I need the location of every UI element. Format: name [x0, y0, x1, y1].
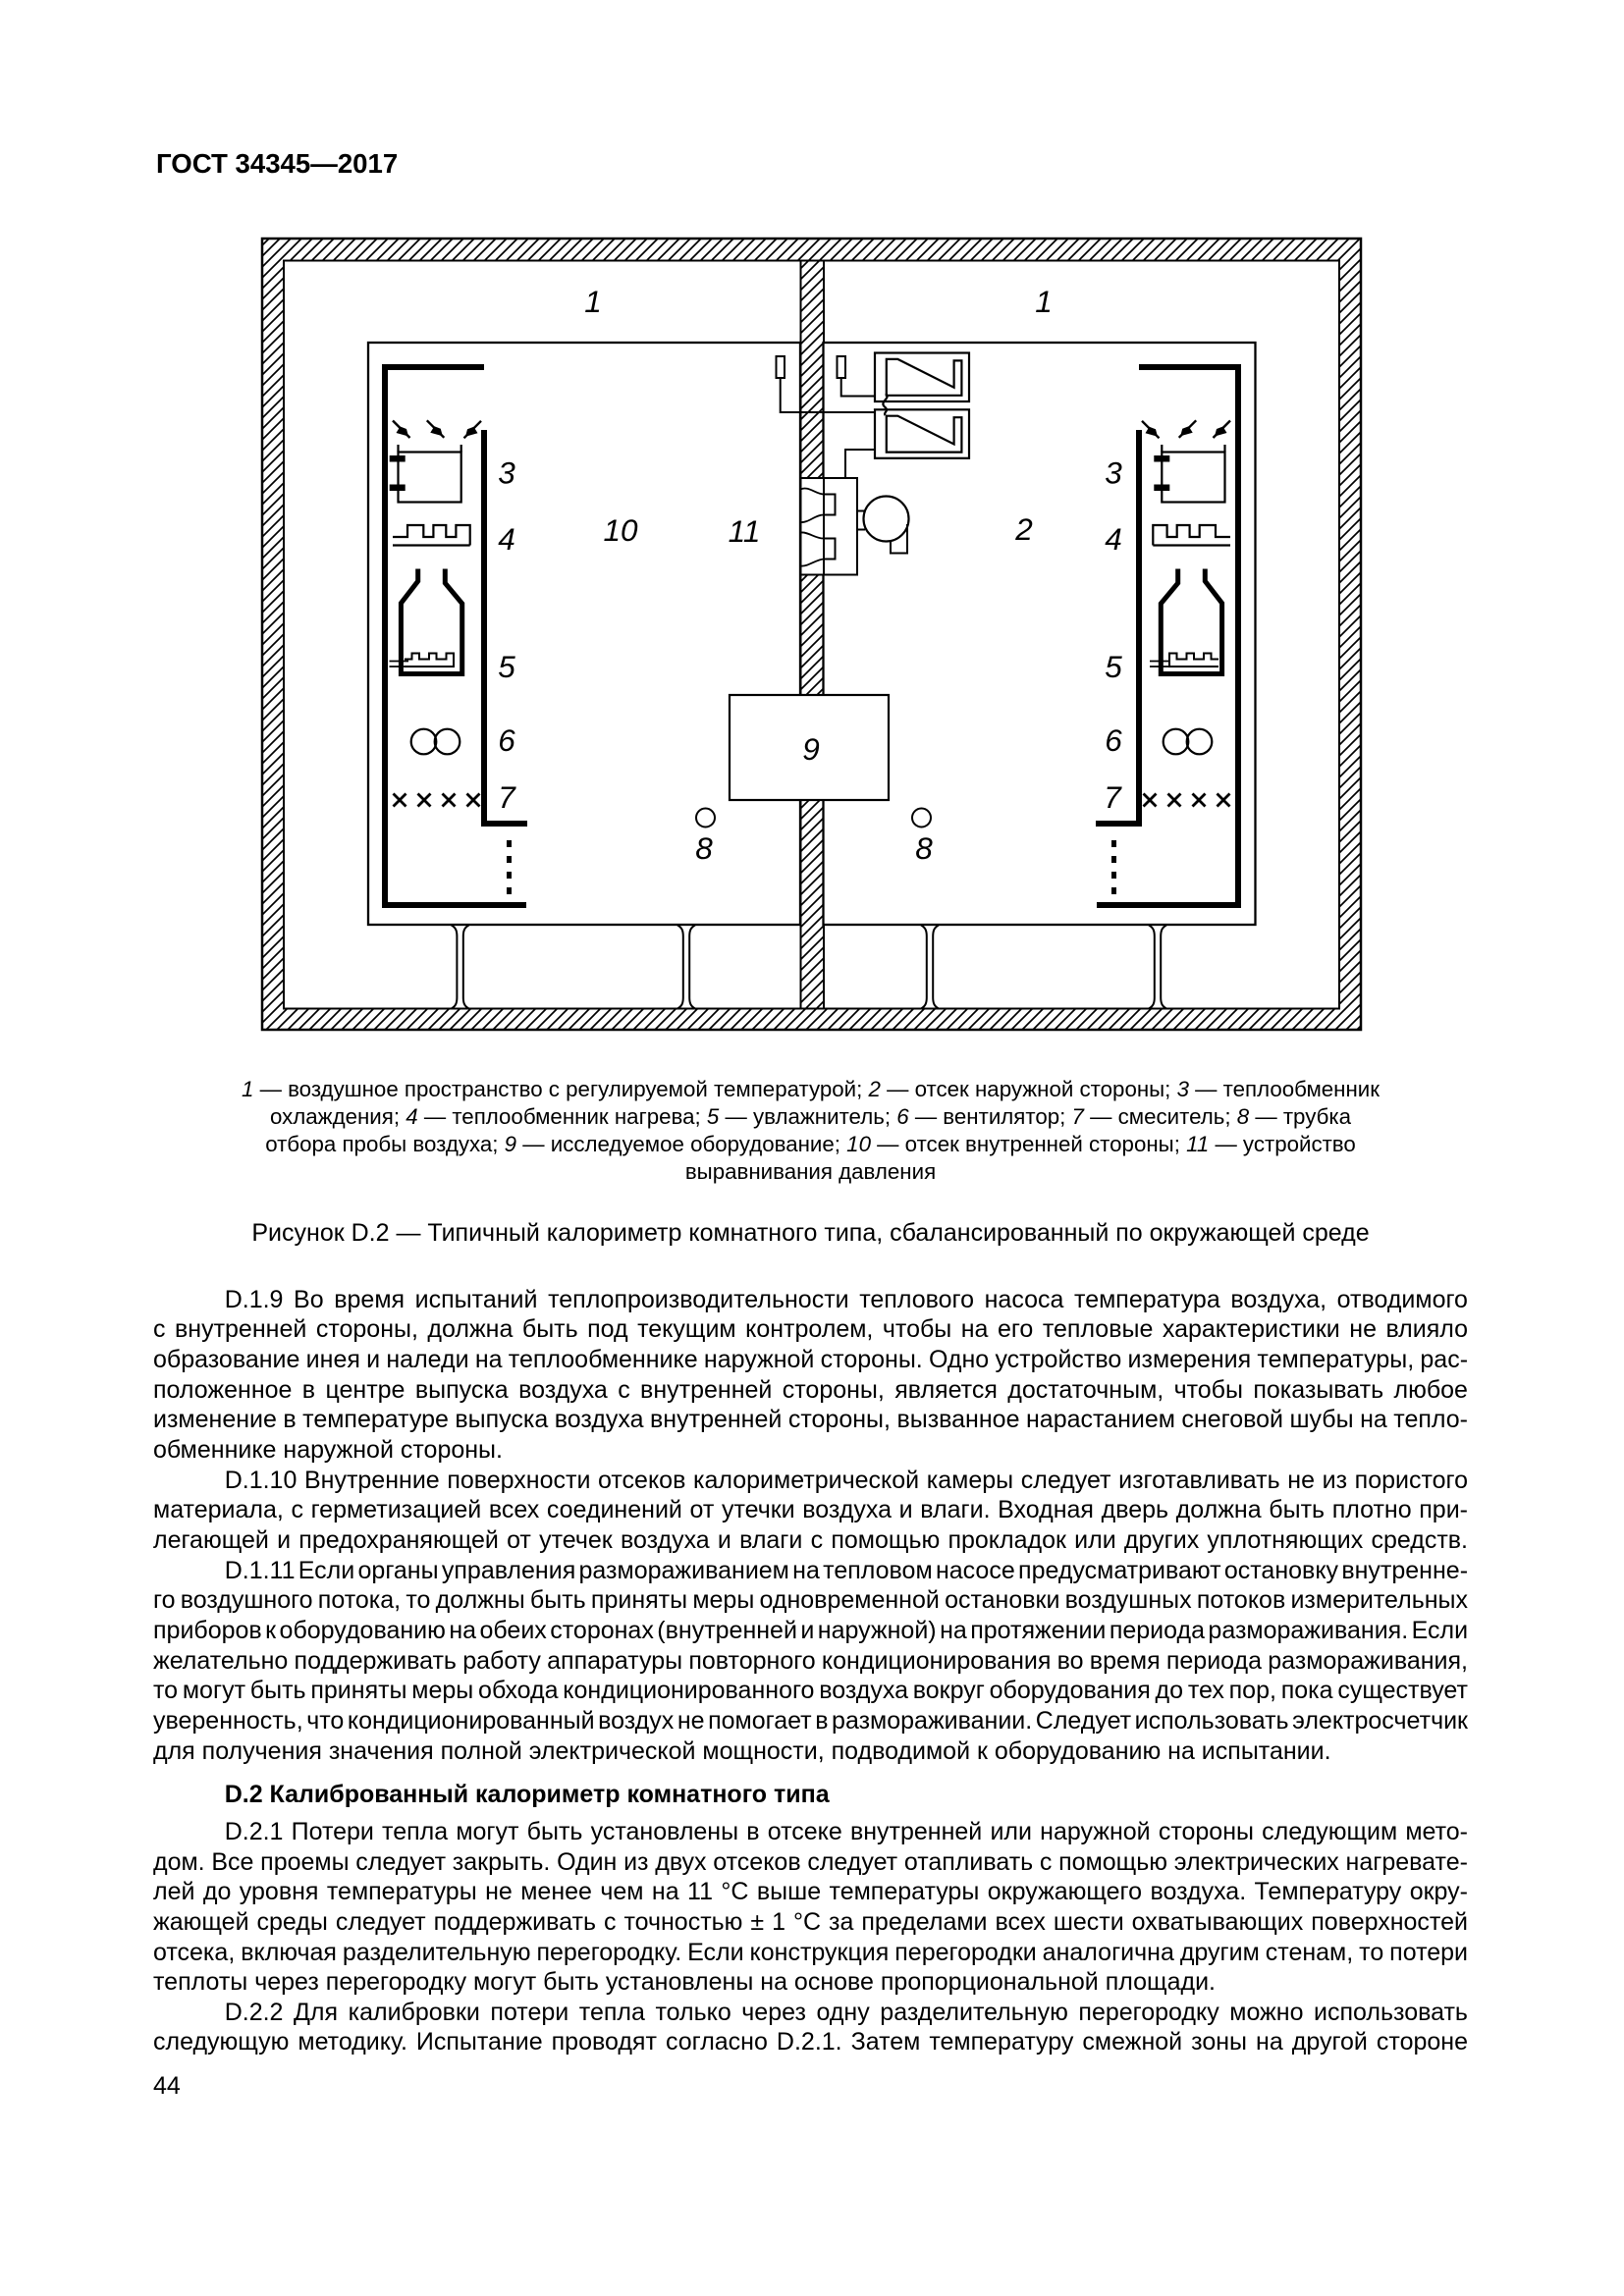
svg-text:10: 10	[603, 512, 638, 548]
svg-text:3: 3	[1105, 455, 1122, 491]
svg-text:11: 11	[729, 513, 761, 549]
svg-text:1: 1	[584, 284, 602, 319]
svg-text:8: 8	[695, 830, 713, 866]
svg-text:1: 1	[1035, 284, 1053, 319]
svg-text:6: 6	[1105, 722, 1122, 758]
svg-text:3: 3	[498, 455, 515, 491]
svg-text:4: 4	[498, 521, 515, 557]
svg-text:7: 7	[1104, 779, 1122, 815]
svg-text:4: 4	[1105, 521, 1122, 557]
svg-text:8: 8	[915, 830, 933, 866]
svg-text:5: 5	[498, 649, 515, 684]
svg-text:2: 2	[1014, 511, 1033, 547]
svg-text:7: 7	[498, 779, 516, 815]
svg-text:5: 5	[1105, 649, 1122, 684]
svg-text:6: 6	[498, 722, 515, 758]
svg-text:9: 9	[802, 731, 820, 767]
